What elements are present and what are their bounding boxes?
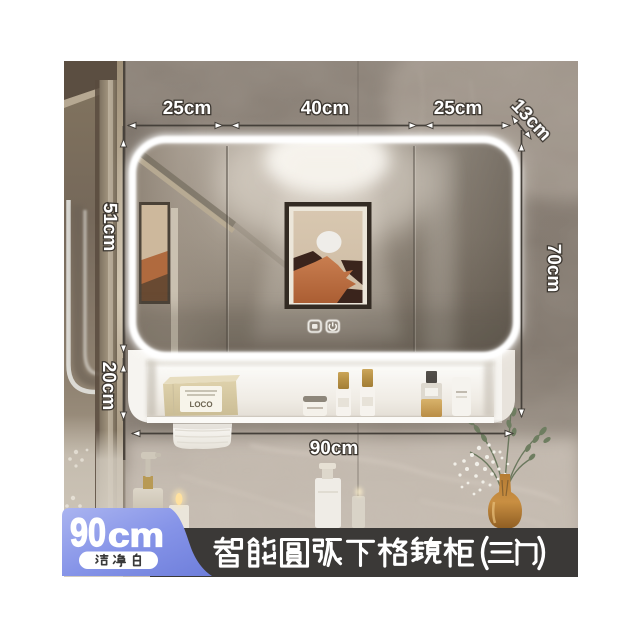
svg-text:51cm: 51cm [99,203,120,252]
svg-text:20cm: 20cm [98,362,119,411]
svg-text:LOCO: LOCO [189,400,212,409]
svg-text:cm: cm [108,517,164,554]
svg-text:40cm: 40cm [301,98,350,119]
svg-text:25cm: 25cm [163,98,212,119]
svg-text:90cm: 90cm [310,438,359,459]
svg-text:70cm: 70cm [543,244,564,293]
svg-text:90: 90 [70,511,106,555]
svg-text:25cm: 25cm [434,98,483,119]
